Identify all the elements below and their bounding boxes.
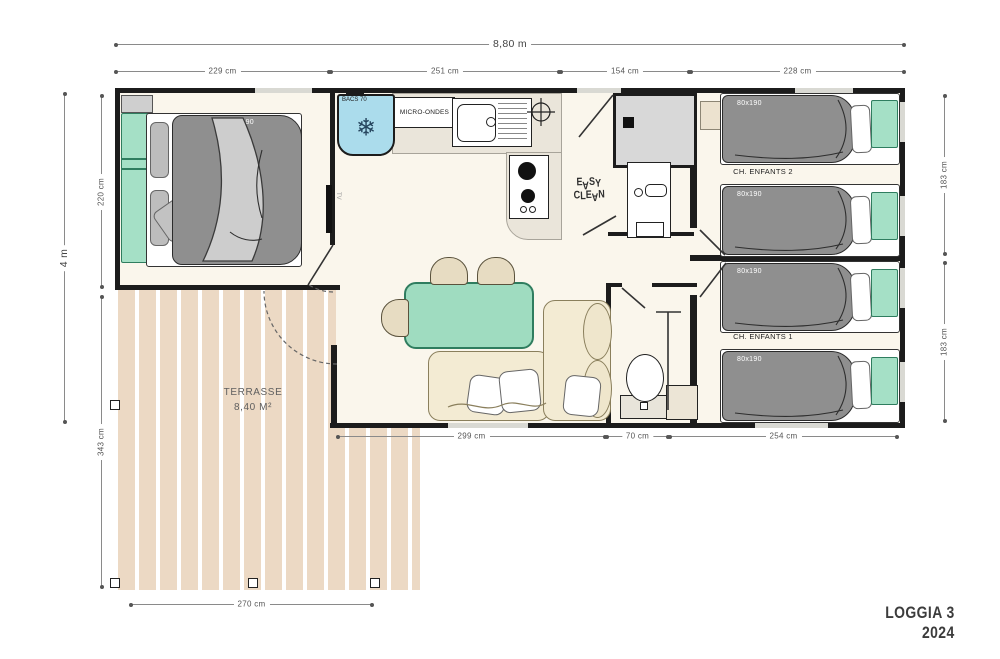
kids-bed-size: 80x190 bbox=[737, 356, 762, 363]
window bbox=[255, 88, 312, 93]
dim-bottom-seg3: 254 cm bbox=[669, 436, 898, 437]
tv-label: TV bbox=[335, 192, 341, 200]
master-bed-size: 140x190 bbox=[225, 119, 254, 126]
dim-bottom-seg1: 299 cm bbox=[337, 436, 606, 437]
shower bbox=[613, 93, 697, 168]
fridge: BACS 70 ❄ bbox=[337, 94, 395, 156]
dim-bottom-seg2: 70 cm bbox=[606, 436, 669, 437]
nightstand bbox=[871, 100, 898, 148]
plan-title-line1: LOGGIA 3 bbox=[886, 603, 955, 623]
terrace-deck-right bbox=[336, 428, 420, 590]
terrace-post bbox=[110, 578, 120, 588]
dim-label: 251 cm bbox=[427, 67, 463, 76]
kids-room-2-label: CH. ENFANTS 2 bbox=[713, 167, 813, 176]
terrace-post bbox=[248, 578, 258, 588]
toilet-flush bbox=[640, 402, 648, 410]
washbasin-tap bbox=[634, 188, 643, 197]
wall-wc-top-a bbox=[606, 283, 622, 287]
tv bbox=[326, 185, 332, 233]
dim-label: 229 cm bbox=[204, 67, 240, 76]
terrace-post bbox=[370, 578, 380, 588]
dim-label: 183 cm bbox=[940, 157, 949, 193]
terrace-area: 8,40 M² bbox=[190, 400, 316, 415]
window bbox=[900, 102, 905, 142]
window bbox=[900, 362, 905, 402]
pillow bbox=[850, 273, 872, 322]
kids-bed-size: 80x190 bbox=[737, 100, 762, 107]
sofa-pillow bbox=[498, 368, 542, 414]
terrace-label: TERRASSE 8,40 M² bbox=[190, 385, 316, 415]
stove-knob bbox=[529, 206, 536, 213]
dim-label: 254 cm bbox=[765, 432, 801, 441]
stove-burner bbox=[518, 162, 536, 180]
toilet-bowl bbox=[626, 354, 664, 402]
dim-label: 220 cm bbox=[97, 173, 106, 209]
master-duvet bbox=[172, 115, 302, 265]
dim-top-total: 8,80 m bbox=[115, 44, 905, 45]
sink-tap bbox=[486, 117, 496, 127]
chair bbox=[381, 299, 409, 337]
wardrobe-shelf bbox=[121, 95, 153, 113]
pillow bbox=[150, 122, 169, 178]
dim-label: 4 m bbox=[58, 245, 70, 271]
dim-label: 299 cm bbox=[453, 432, 489, 441]
bathroom-shelf bbox=[636, 222, 664, 237]
nightstand bbox=[871, 192, 898, 240]
dim-label: 343 cm bbox=[97, 424, 106, 460]
kids-bed-size: 80x190 bbox=[737, 191, 762, 198]
chair bbox=[477, 257, 515, 285]
microwave: MICRO-ONDES bbox=[394, 97, 455, 128]
pillow bbox=[850, 196, 872, 245]
microwave-label: MICRO-ONDES bbox=[400, 109, 449, 116]
wall-bedroom-bottom bbox=[115, 285, 340, 290]
stove-knob bbox=[520, 206, 527, 213]
dim-label: 70 cm bbox=[622, 432, 653, 441]
fridge-label: BACS 70 bbox=[342, 97, 367, 103]
plan-title: LOGGIA 3 2024 bbox=[886, 603, 955, 642]
dim-label: 183 cm bbox=[940, 324, 949, 360]
terrace-post bbox=[110, 400, 120, 410]
water-heater bbox=[666, 385, 698, 420]
floor-plan: TERRASSE 8,40 M² 140x190 TV BACS 70 ❄ MI… bbox=[0, 0, 1000, 659]
pillow bbox=[850, 105, 872, 154]
plan-title-line2: 2024 bbox=[886, 623, 955, 643]
snowflake-icon: ❄ bbox=[356, 113, 376, 142]
wall-wc-top-b bbox=[652, 283, 697, 287]
nightstand bbox=[871, 269, 898, 317]
stove-burner bbox=[521, 189, 535, 203]
dining-table bbox=[404, 282, 534, 349]
easy-clean-line2: CLEAN bbox=[564, 188, 615, 202]
sofa-pillow bbox=[562, 374, 602, 418]
dim-right-seg2: 183 cm bbox=[944, 262, 945, 422]
dim-label: 154 cm bbox=[607, 67, 643, 76]
chair bbox=[430, 257, 468, 285]
dim-terrace-width: 270 cm bbox=[130, 604, 373, 605]
sofa-bolster bbox=[583, 303, 612, 360]
dim-label: 8,80 m bbox=[489, 38, 531, 50]
dim-top-seg2: 251 cm bbox=[330, 71, 560, 72]
easy-clean-logo: EASY CLEAN bbox=[563, 175, 615, 202]
window bbox=[448, 423, 528, 428]
nightstand bbox=[871, 357, 898, 405]
washbasin bbox=[645, 184, 667, 197]
terrace-name: TERRASSE bbox=[190, 385, 316, 400]
dim-label: 270 cm bbox=[233, 600, 269, 609]
dim-top-seg3: 154 cm bbox=[560, 71, 690, 72]
dim-left-seg1: 220 cm bbox=[101, 95, 102, 288]
kids-bed-size: 80x190 bbox=[737, 268, 762, 275]
dim-left-seg2: 343 cm bbox=[101, 296, 102, 588]
dim-label: 228 cm bbox=[779, 67, 815, 76]
wall-bedroom-left bbox=[115, 88, 120, 290]
window bbox=[900, 268, 905, 308]
pillow bbox=[850, 361, 872, 410]
terrace-deck bbox=[118, 290, 336, 590]
sink-drainboard bbox=[498, 103, 527, 141]
window bbox=[900, 196, 905, 236]
window bbox=[755, 423, 828, 428]
wall-living-left bbox=[331, 345, 337, 428]
dim-top-seg1: 229 cm bbox=[115, 71, 330, 72]
dim-top-seg4: 228 cm bbox=[690, 71, 905, 72]
dim-right-seg1: 183 cm bbox=[944, 95, 945, 255]
dim-left-total: 4 m bbox=[64, 93, 65, 423]
kids-room-1-label: CH. ENFANTS 1 bbox=[713, 332, 813, 341]
shower-drain bbox=[623, 117, 634, 128]
